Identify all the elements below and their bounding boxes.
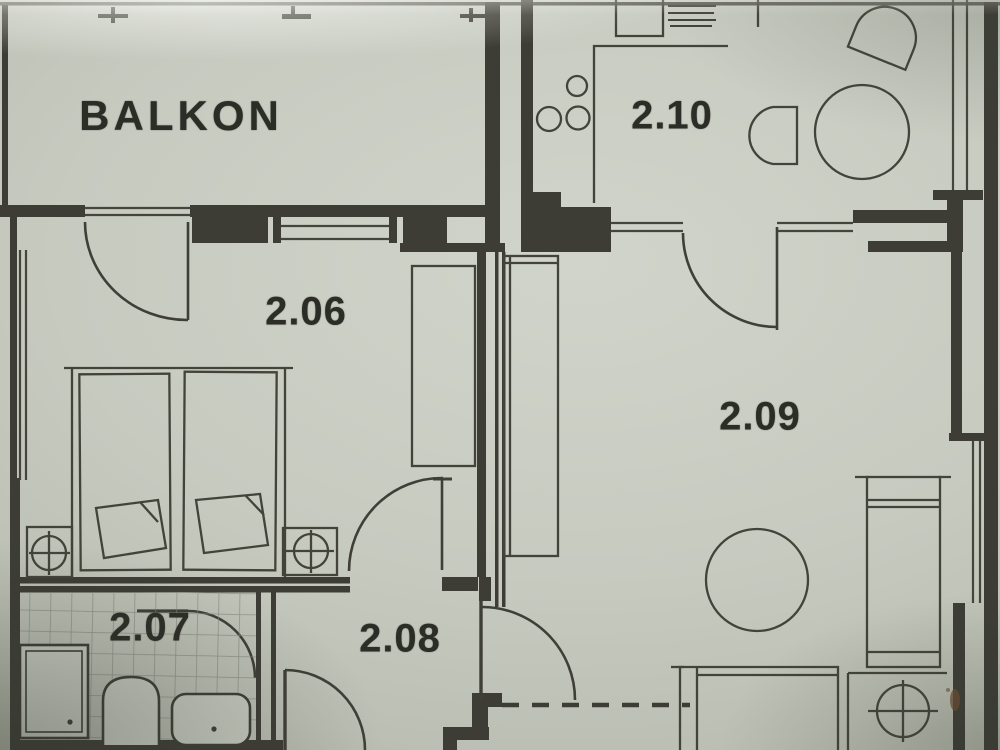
pillow-right xyxy=(196,494,268,553)
closet-209 xyxy=(504,256,558,556)
floorplan-photo: BALKON 2.10 2.06 2.09 2.07 2.08 xyxy=(0,0,1000,750)
tub-chair-left xyxy=(749,107,797,164)
dish-rack xyxy=(668,6,716,26)
shower-tray xyxy=(20,645,88,738)
hob-burners xyxy=(537,76,590,131)
room-label-balkon: BALKON xyxy=(79,92,283,140)
nightstand-lamp-left xyxy=(27,527,72,577)
double-bed xyxy=(64,368,293,577)
bedroom-furniture xyxy=(27,266,475,577)
room-label-2-09: 2.09 xyxy=(719,395,801,440)
room-label-2-06: 2.06 xyxy=(265,290,347,335)
bidet xyxy=(172,694,250,745)
room-label-2-07: 2.07 xyxy=(109,606,191,651)
bed-209 xyxy=(855,477,951,667)
pillow-left xyxy=(96,500,166,558)
sofa xyxy=(671,667,838,750)
room-label-2-10: 2.10 xyxy=(631,94,713,139)
living-round-table xyxy=(706,529,808,631)
nightstand-lamp-right xyxy=(283,528,337,575)
nightstand-lamp-209 xyxy=(848,673,947,750)
room-label-2-08: 2.08 xyxy=(359,617,441,662)
scan-stain xyxy=(946,688,960,711)
dining-round-table xyxy=(815,85,909,179)
toilet xyxy=(103,677,159,745)
wardrobe-206 xyxy=(412,266,475,466)
survey-tick-marks xyxy=(98,6,485,23)
kitchen-fixtures xyxy=(537,0,925,203)
tub-chair-top xyxy=(848,0,925,70)
